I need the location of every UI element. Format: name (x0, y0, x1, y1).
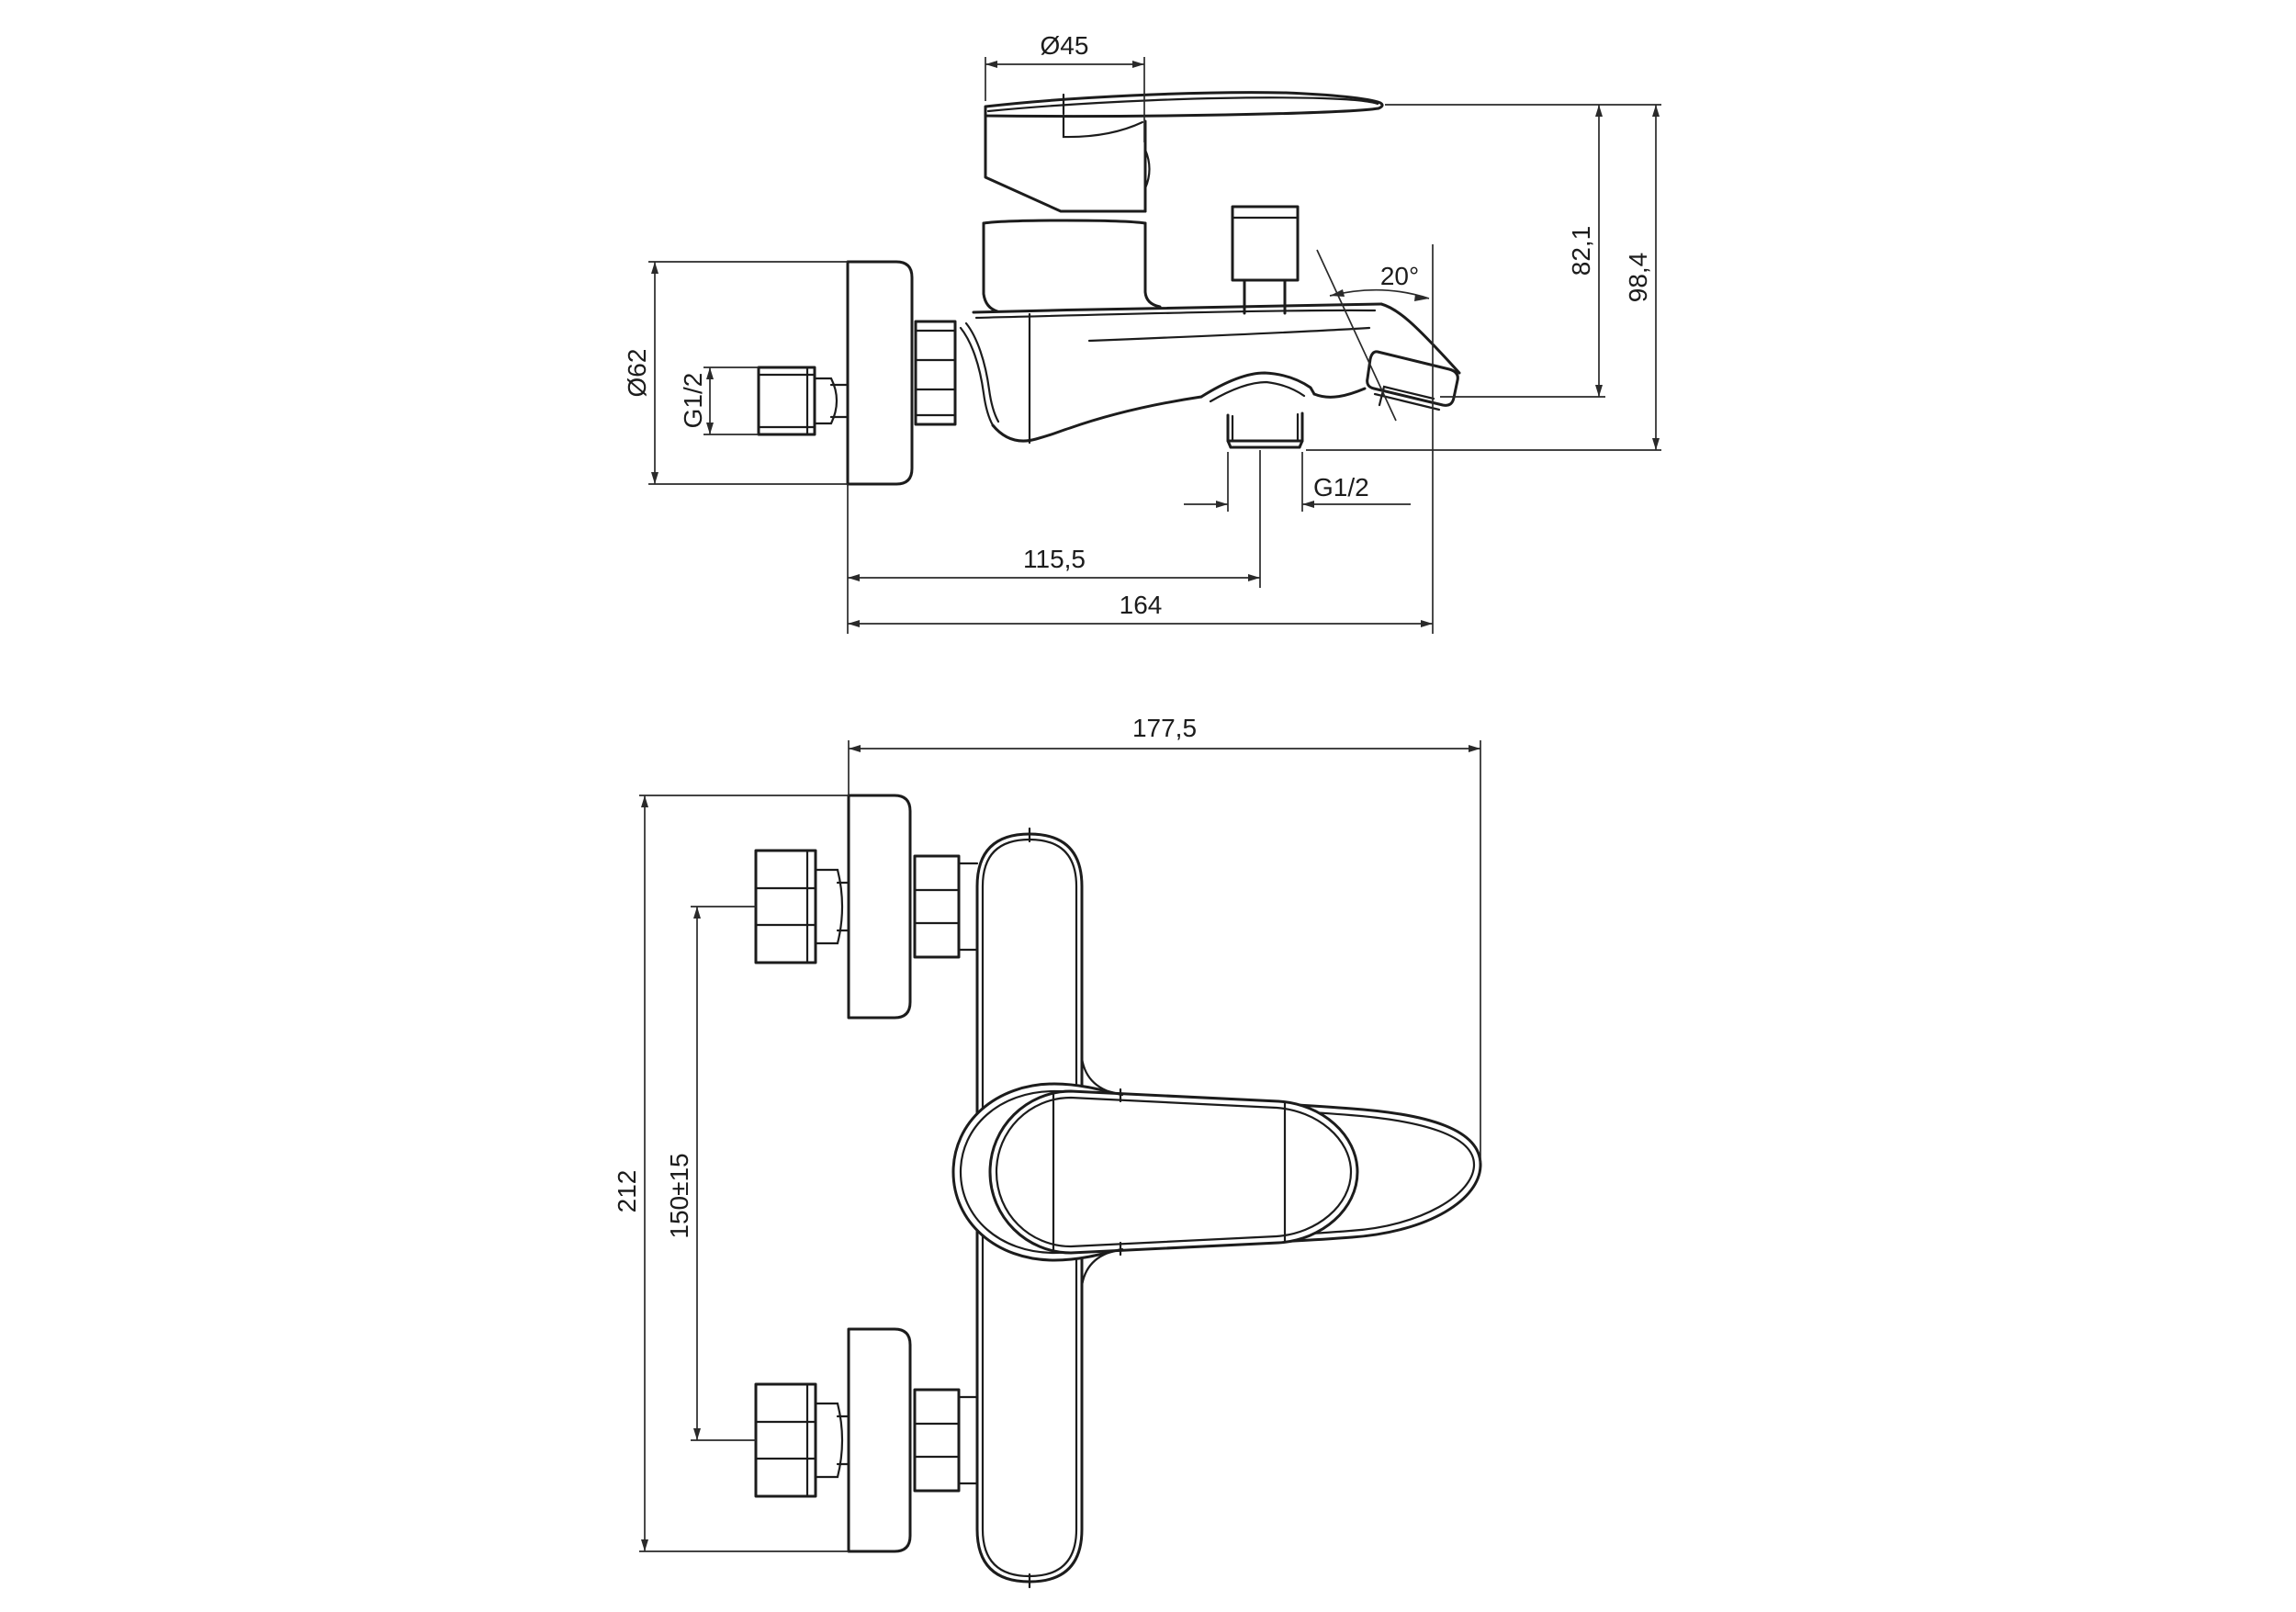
dim-label-984: 98,4 (1624, 253, 1652, 303)
dim-label-g12-wall: G1/2 (679, 373, 707, 429)
dim-label-150: 150±15 (665, 1153, 693, 1238)
dim-label-1155: 115,5 (1023, 545, 1086, 573)
dim-label-dia62: Ø62 (623, 349, 651, 398)
dim-label-1775: 177,5 (1132, 714, 1197, 742)
dim-label-821: 82,1 (1567, 226, 1595, 276)
drawing-sheet: Ø45 82,1 98,4 20° G1/2 (0, 0, 2296, 1612)
dim-label-20deg: 20° (1380, 262, 1419, 290)
handle-grip-pill (990, 1091, 1357, 1253)
dim-label-164: 164 (1120, 591, 1163, 619)
dim-label-g12-outlet: G1/2 (1313, 473, 1369, 502)
dim-label-dia45: Ø45 (1041, 31, 1089, 60)
dim-label-212: 212 (613, 1170, 641, 1213)
technical-drawing: Ø45 82,1 98,4 20° G1/2 (0, 0, 2296, 1612)
drawing-background (0, 0, 2296, 1612)
